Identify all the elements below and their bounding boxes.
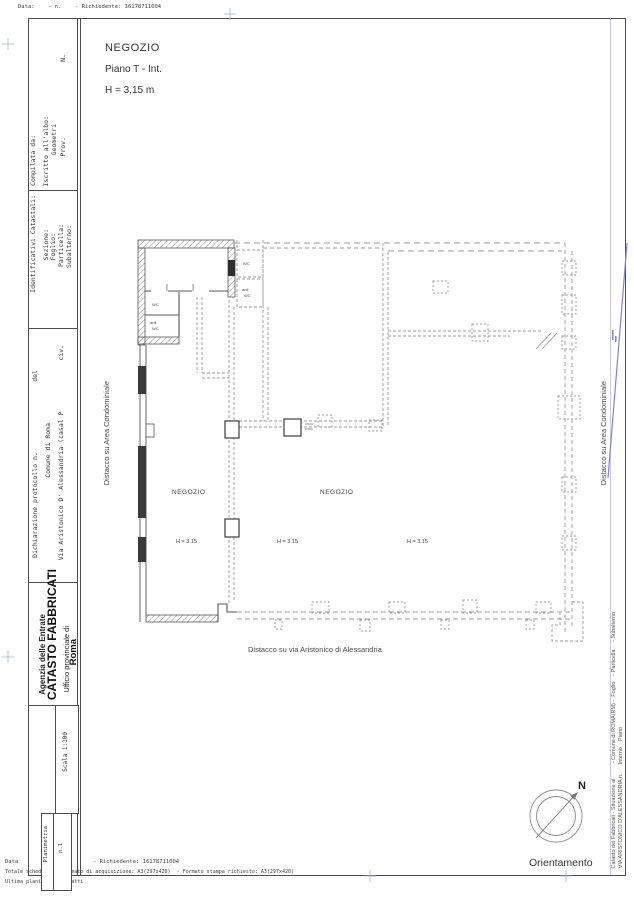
band-prov: Prov. <box>60 137 67 157</box>
band-n-label: N. <box>60 54 67 62</box>
band-dichiarazione: Dichiarazione protocollo n. del <box>32 370 39 558</box>
distacco-area-right: Distacco su Area Condominiale <box>599 381 608 485</box>
orientamento-label: Orientamento <box>529 857 593 869</box>
band-comune-roma: Comune di Roma <box>45 423 52 478</box>
title-negozio: NEGOZIO <box>105 42 160 54</box>
footer-data-label: Data <box>5 859 18 865</box>
header-n-label: - n. <box>48 4 61 10</box>
header-data-label: Data: <box>18 4 35 10</box>
band-particella: Particella: <box>58 224 65 267</box>
band-divider-2 <box>28 328 78 329</box>
band-foglio: Foglio: <box>50 233 57 260</box>
title-piano: Piano T - Int. <box>105 64 162 75</box>
cadastral-plan-sheet: Data: - n. - Richiedente: 16178711004 Da… <box>0 0 634 900</box>
band-compilata-da: Compilata da: <box>30 135 37 186</box>
band-divider-1 <box>28 190 78 191</box>
band-subalterno: Subalterno: <box>66 225 73 268</box>
band-identificativi-title: Identificativi Catastali: <box>30 195 37 293</box>
planimetria-label: Planimetria <box>43 826 50 862</box>
compass-n-label: N <box>578 780 586 792</box>
agency-catasto-fabbricati: CATASTO FABBRICATI <box>48 569 57 700</box>
agency-roma: Roma <box>69 639 78 665</box>
distacco-area-left: Distacco su Area Condominiale <box>102 381 111 485</box>
title-altezza: H = 3,15 m <box>105 85 154 96</box>
sheet-outer-border <box>28 18 626 876</box>
band-via-aristonico: Via Aristonico D' Alessandria (casal P c… <box>58 345 65 560</box>
planimetria-n1-label: n.1 <box>58 843 65 853</box>
band-geometri: Geometri <box>51 124 58 155</box>
scala-label: Scala 1:100 <box>62 732 69 772</box>
strip-via-line: VIA ARISTONICO D'ALESSANDRIA n. Interno … <box>617 727 626 868</box>
header-richiedente: - Richiedente: 16178711004 <box>75 4 161 10</box>
drawing-left-border <box>80 18 81 875</box>
distacco-via-bottom: Distacco su via Aristonico di Alessandri… <box>248 645 382 654</box>
band-iscritto-albo: Iscritto all'albo: <box>43 116 50 186</box>
